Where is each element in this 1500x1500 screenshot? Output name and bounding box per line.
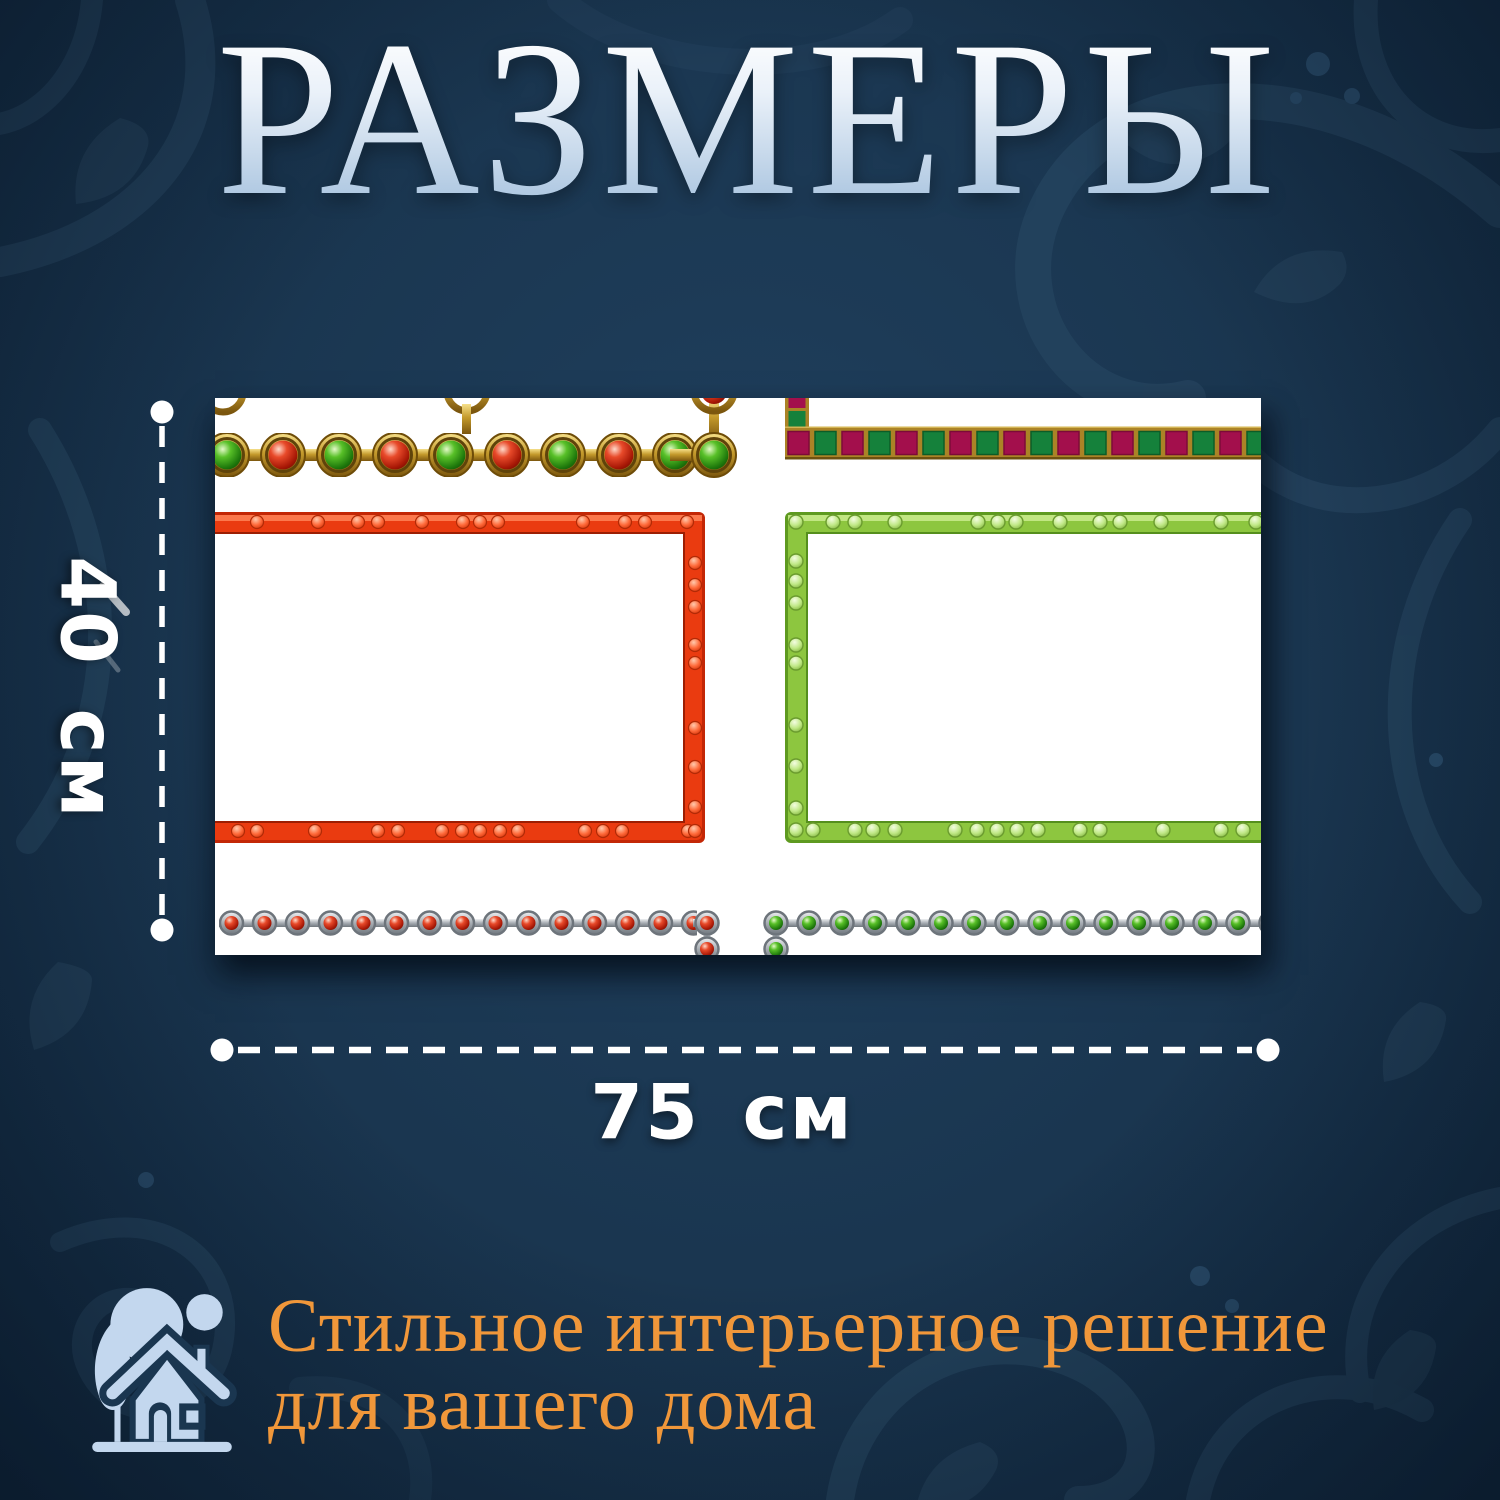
red-rivet-frame [215, 512, 705, 843]
house-icon-ground [92, 1442, 232, 1452]
footer: Стильное интерьерное решение для вашего … [86, 1282, 1329, 1454]
sticker-sheet-image [215, 398, 1261, 955]
house-icon-sun [186, 1294, 222, 1330]
width-dimension-label: 75 см [590, 1068, 853, 1157]
green-bead-chain [765, 908, 1262, 955]
red-bead-chain [219, 908, 719, 955]
green-rivet-frame [785, 512, 1261, 843]
footer-tagline-line2: для вашего дома [268, 1366, 1329, 1444]
page-title: РАЗМЕРЫ [0, 8, 1500, 230]
footer-tagline: Стильное интерьерное решение для вашего … [268, 1288, 1329, 1443]
product-photo [215, 398, 1261, 955]
footer-tagline-line1: Стильное интерьерное решение [268, 1288, 1329, 1366]
checkered-ribbon [785, 398, 1261, 460]
height-dimension-label: 40 см [44, 556, 133, 819]
gold-bead-garland [215, 398, 736, 477]
house-icon [86, 1282, 238, 1454]
infographic-canvas: РАЗМЕРЫ [0, 0, 1500, 1500]
